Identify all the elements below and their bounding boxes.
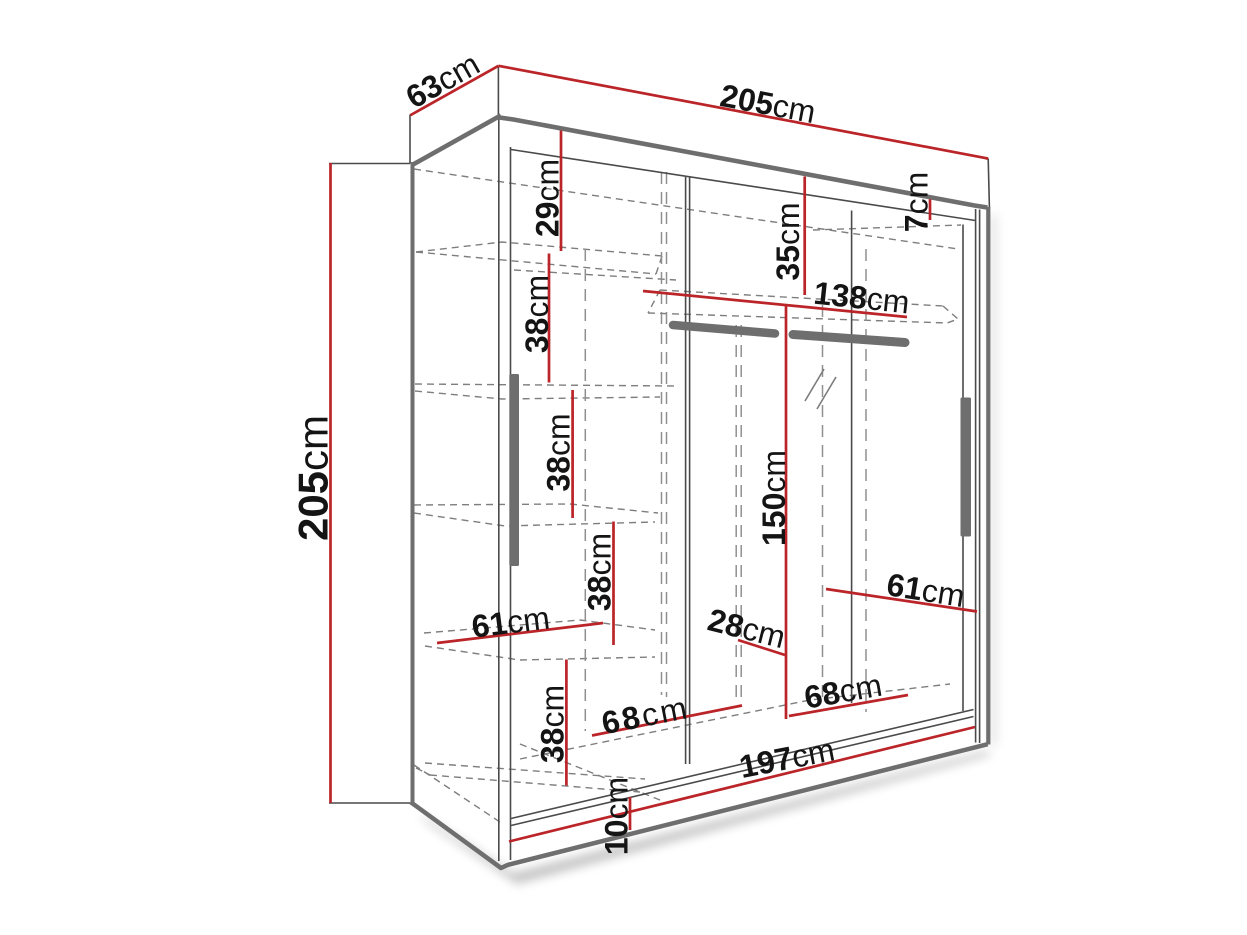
- svg-text:38cm: 38cm: [519, 275, 555, 353]
- svg-text:205cm: 205cm: [290, 415, 337, 541]
- svg-text:150cm: 150cm: [756, 450, 792, 546]
- svg-text:38cm: 38cm: [541, 413, 577, 491]
- svg-text:29cm: 29cm: [530, 159, 566, 237]
- svg-text:10cm: 10cm: [599, 777, 635, 855]
- svg-text:7cm: 7cm: [899, 172, 935, 232]
- svg-text:35cm: 35cm: [770, 202, 806, 280]
- svg-text:38cm: 38cm: [535, 685, 571, 763]
- svg-text:38cm: 38cm: [582, 533, 618, 611]
